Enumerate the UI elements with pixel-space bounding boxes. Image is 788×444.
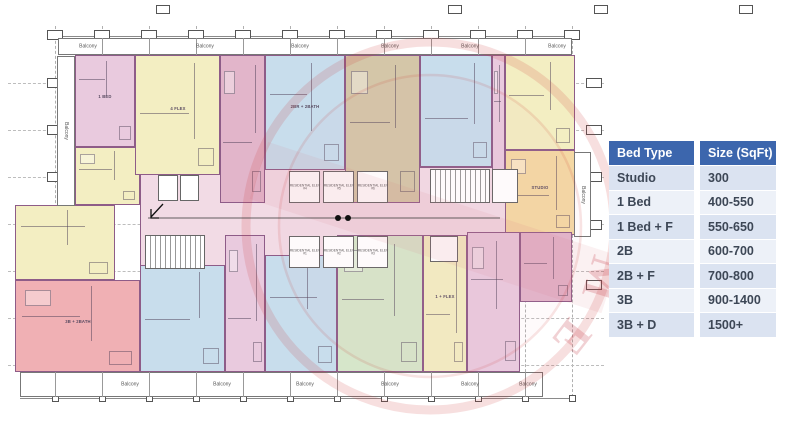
corridor-dot: [335, 215, 341, 221]
table-row: 2B600-700: [609, 240, 776, 265]
table-row: 1 Bed400-550: [609, 191, 776, 216]
cell-bed-type: 2B + F: [609, 264, 694, 289]
cell-bed-type: 3B: [609, 289, 694, 314]
table-body: Studio3001 Bed400-5501 Bed + F550-6502B6…: [609, 166, 776, 338]
cell-size-sqft: 600-700: [700, 240, 776, 265]
table-row: 1 Bed + F550-650: [609, 215, 776, 240]
table-row: 3B900-1400: [609, 289, 776, 314]
cell-size-sqft: 300: [700, 166, 776, 191]
bed-type-size-table: Bed Type Size (SqFt) Studio3001 Bed400-5…: [609, 141, 776, 338]
table-header-row: Bed Type Size (SqFt): [609, 141, 776, 166]
table-header-size-sqft: Size (SqFt): [700, 141, 776, 166]
corridor-dot: [345, 215, 351, 221]
cell-bed-type: Studio: [609, 166, 694, 191]
cell-bed-type: 3B + D: [609, 313, 694, 338]
cell-bed-type: 1 Bed: [609, 191, 694, 216]
table-row: 3B + D1500+: [609, 313, 776, 338]
cell-size-sqft: 400-550: [700, 191, 776, 216]
table-row: 2B + F700-800: [609, 264, 776, 289]
cell-size-sqft: 900-1400: [700, 289, 776, 314]
watermark-inner-fill: [280, 76, 580, 376]
cell-size-sqft: 1500+: [700, 313, 776, 338]
cell-size-sqft: 700-800: [700, 264, 776, 289]
leader-arrow: [151, 204, 163, 218]
cell-bed-type: 1 Bed + F: [609, 215, 694, 240]
cell-size-sqft: 550-650: [700, 215, 776, 240]
table-header-bed-type: Bed Type: [609, 141, 694, 166]
floor-plan-slide: 1 BED4 FLEX2BR + 2BATHSTUDIO3B + 2BATH1 …: [0, 0, 788, 444]
table-row: Studio300: [609, 166, 776, 191]
cell-bed-type: 2B: [609, 240, 694, 265]
